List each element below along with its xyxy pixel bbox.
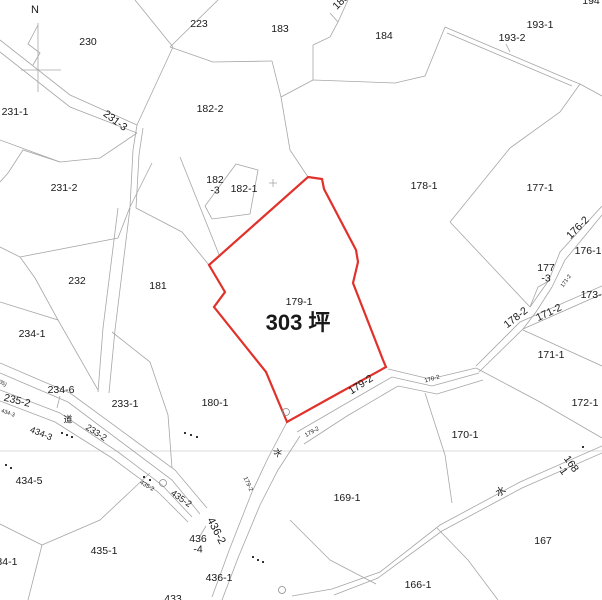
boundary-line (0, 302, 98, 390)
parcel-label-179-2: 179-2 (304, 426, 321, 439)
parcel-label-171-2: 171-2 (560, 274, 573, 289)
boundary-line (109, 330, 115, 393)
parcel-label-178-2: 178-2 (502, 305, 531, 331)
parcel-label-194: 194 (582, 0, 600, 7)
parcel-label-232: 232 (68, 275, 86, 287)
parcel-label-180-1: 180-1 (202, 397, 229, 409)
boundary-line (510, 84, 580, 148)
parcel-label-182-2: 182-2 (197, 103, 224, 115)
map-canvas: N230223183185184194193-1193-2231-1231-31… (0, 0, 602, 600)
parcel-label-436-4: 436-4 (189, 533, 207, 556)
parcel-label-234-6: 234-6 (48, 384, 75, 396)
boundary-line (136, 208, 209, 265)
parcel-label-道: 道 (63, 413, 72, 424)
survey-dot-marker (262, 561, 264, 563)
parcel-label-434-5: 434-5 (16, 475, 43, 487)
boundary-line (506, 44, 510, 52)
boundary-line (0, 150, 60, 182)
parcel-label-223: 223 (190, 18, 208, 30)
survey-dot-marker (196, 436, 198, 438)
parcel-label-171-2: 171-2 (534, 302, 564, 324)
parcel-label-182-1: 182-1 (231, 183, 258, 195)
parcel-label-435-1: 435-1 (91, 545, 118, 557)
boundary-line (281, 80, 313, 97)
boundary-line (98, 328, 103, 392)
survey-dot-marker (190, 434, 192, 436)
parcel-label-234-1: 234-1 (19, 328, 46, 340)
survey-dot-marker (184, 432, 186, 434)
survey-dot-marker (5, 464, 7, 466)
parcel-label-435-2: 435-2 (139, 480, 156, 493)
parcel-label-231-2: 231-2 (51, 182, 78, 194)
boundary-line (450, 222, 530, 307)
survey-point-marker (279, 587, 286, 594)
parcel-label-176-1: 176-1 (575, 245, 602, 257)
survey-dot-marker (61, 432, 63, 434)
cadastral-map: N230223183185184194193-1193-2231-1231-31… (0, 0, 602, 600)
survey-dot-marker (252, 556, 254, 558)
parcel-label-183: 183 (271, 23, 289, 35)
parcel-label-230: 230 (79, 36, 97, 48)
survey-point-marker (160, 480, 167, 487)
boundary-line (425, 393, 452, 503)
boundary-line (136, 128, 143, 208)
parcel-label-193-1: 193-1 (527, 19, 554, 31)
survey-dot-marker (143, 476, 145, 478)
parcel-label-171-1: 171-1 (538, 349, 565, 361)
boundary-line (103, 208, 118, 328)
parcel-label-169-1: 169-1 (334, 492, 361, 504)
survey-dot-marker (10, 467, 12, 469)
boundary-line (135, 0, 173, 47)
parcel-label-233-1: 233-1 (112, 398, 139, 410)
boundary-line (180, 157, 220, 257)
survey-dot-marker (149, 479, 151, 481)
boundary-line (0, 207, 130, 257)
boundary-line (222, 436, 300, 600)
compass-north-letter: N (31, 4, 39, 16)
boundary-line (137, 47, 173, 125)
parcel-label-176-2: 176-2 (564, 214, 592, 242)
parcel-label-166-1: 166-1 (405, 579, 432, 591)
parcel-label-177-1: 177-1 (527, 182, 554, 194)
survey-dot-marker (582, 446, 584, 448)
parcel-label-173-1: 173-1 (581, 289, 602, 301)
parcel-label-177-3: 177-3 (537, 262, 555, 285)
parcel-label-170-1: 170-1 (452, 429, 479, 441)
boundary-line (281, 97, 308, 177)
parcel-label-193-2: 193-2 (499, 32, 526, 44)
boundary-line (170, 47, 272, 62)
boundary-line (0, 524, 42, 545)
boundary-line (28, 545, 42, 600)
parcel-label-170-2: 170-2 (424, 375, 441, 385)
parcel-label-167: 167 (534, 535, 552, 547)
parcel-label-179-2: 179-2 (346, 372, 375, 397)
parcel-label-(35): (35) (0, 378, 8, 388)
parcel-label-433: 433 (164, 593, 182, 600)
boundary-line (297, 373, 479, 432)
boundary-line (549, 206, 602, 280)
parcel-label-178-1: 178-1 (411, 180, 438, 192)
parcel-label-181: 181 (149, 280, 167, 292)
boundary-line (330, 560, 376, 584)
parcel-label-231-1: 231-1 (2, 106, 29, 118)
boundary-line (580, 84, 602, 96)
boundary-line (130, 163, 152, 207)
parcel-label-179-2: 179-2 (242, 476, 254, 493)
boundary-line (272, 61, 281, 97)
parcel-label-434-3: 434-3 (0, 408, 15, 418)
parcel-label-434-3: 434-3 (29, 424, 54, 442)
boundary-line (0, 133, 137, 162)
parcel-179-1-area: 303 坪 (266, 310, 331, 335)
boundary-line (0, 401, 188, 522)
boundary-line (330, 13, 338, 22)
boundary-line (437, 528, 498, 600)
survey-dot-marker (66, 434, 68, 436)
boundary-line (450, 148, 510, 222)
parcel-179-1-number: 179-1 (286, 296, 313, 308)
parcel-label-434-1: 434-1 (0, 556, 18, 568)
boundary-line (42, 473, 150, 545)
parcel-label-436-2: 436-2 (204, 516, 227, 547)
boundary-line (20, 257, 58, 320)
boundary-line (290, 520, 330, 560)
survey-dot-marker (71, 436, 73, 438)
parcel-label-184: 184 (375, 30, 393, 42)
parcel-label-233-2: 233-2 (84, 422, 109, 443)
parcel-label-185: 185 (330, 0, 351, 12)
parcel-label-172-1: 172-1 (572, 397, 599, 409)
survey-dot-marker (257, 559, 259, 561)
parcel-label-436-1: 436-1 (206, 572, 233, 584)
parcel-label-182-3: 182-3 (206, 174, 224, 197)
